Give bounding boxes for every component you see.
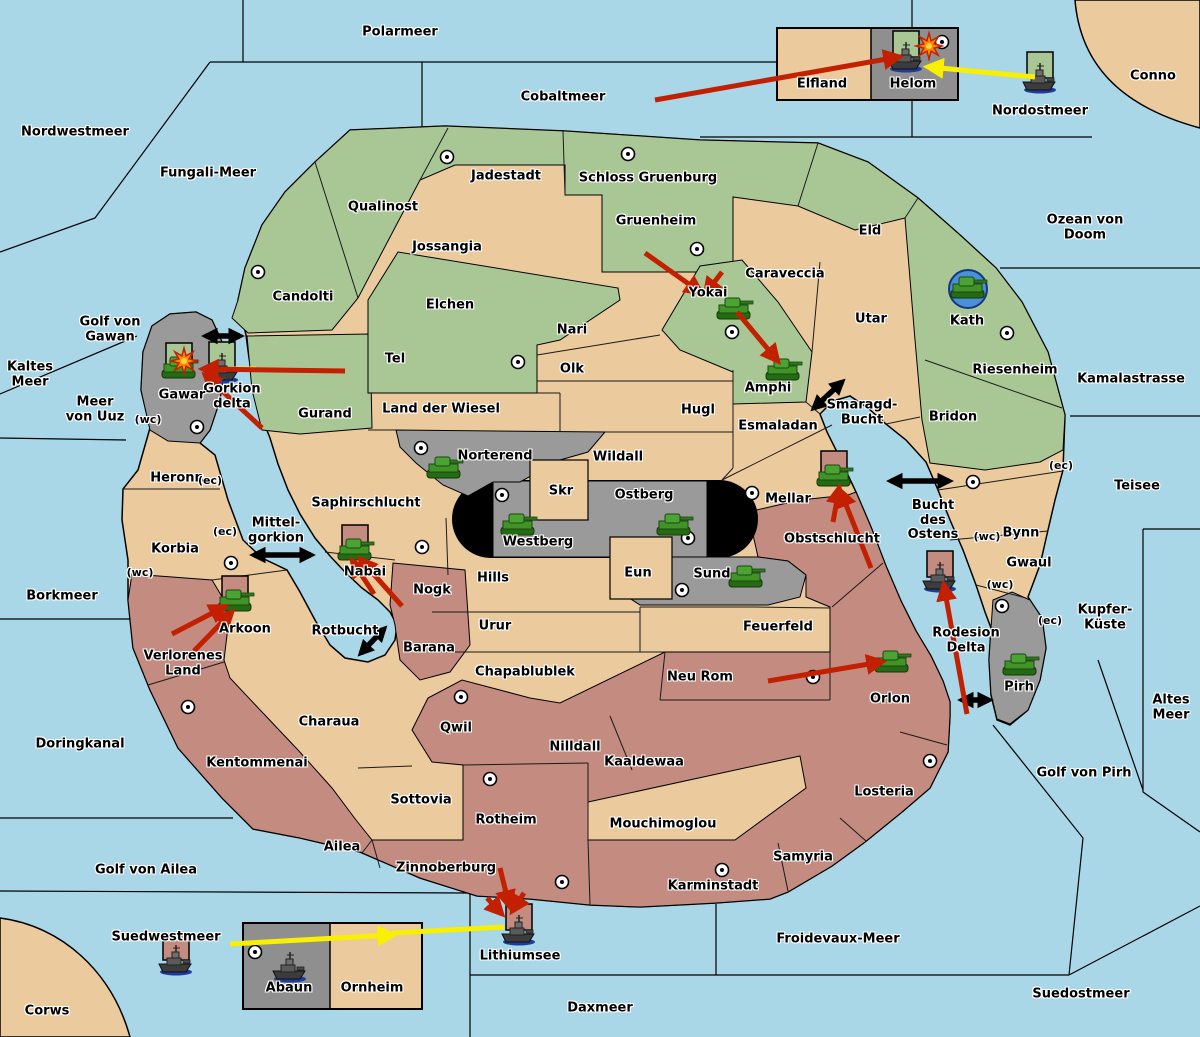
region-label-yokai[interactable]: Yokai — [688, 287, 727, 302]
region-label-bridon[interactable]: Bridon — [929, 411, 977, 426]
region-label-eun[interactable]: Eun — [624, 567, 651, 582]
region-label-nilldall[interactable]: Nilldall — [549, 741, 600, 756]
region-label-helom[interactable]: Helom — [890, 78, 937, 93]
coast-type-marker: (wc) — [127, 567, 154, 579]
map-labels: PolarmeerCobaltmeerNordwestmeerFungali-M… — [0, 0, 1200, 1037]
region-label-hills[interactable]: Hills — [477, 572, 509, 587]
coast-type-marker: (ec) — [1038, 615, 1062, 627]
region-label-olk[interactable]: Olk — [560, 363, 584, 378]
coast-type-marker: (ec) — [1049, 460, 1073, 472]
region-label-ailea[interactable]: Ailea — [324, 841, 361, 856]
region-label-utar[interactable]: Utar — [855, 313, 887, 328]
sea-label-nordwestmeer[interactable]: Nordwestmeer — [21, 126, 129, 141]
region-label-qualinost[interactable]: Qualinost — [348, 201, 418, 216]
region-label-rotheim[interactable]: Rotheim — [475, 814, 536, 829]
region-label-land-der-wiesel[interactable]: Land der Wiesel — [382, 403, 500, 418]
coast-type-marker: (ec) — [198, 475, 222, 487]
region-label-verlorenes-land[interactable]: Verlorenes Land — [143, 649, 222, 678]
sea-label-golf-von-pirh[interactable]: Golf von Pirh — [1036, 767, 1131, 782]
region-label-samyria[interactable]: Samyria — [773, 851, 833, 866]
region-label-gawar[interactable]: Gawar — [159, 389, 206, 404]
region-label-kath[interactable]: Kath — [950, 315, 984, 330]
region-label-tel[interactable]: Tel — [385, 353, 405, 368]
sea-label-gorkion-delta[interactable]: Gorkion delta — [203, 382, 260, 411]
sea-label-altes-meer[interactable]: Altes Meer — [1152, 693, 1189, 722]
sea-label-golf-von-ailea[interactable]: Golf von Ailea — [95, 864, 197, 879]
sea-label-froidevaux-meer[interactable]: Froidevaux-Meer — [776, 933, 899, 948]
sea-label-nordostmeer[interactable]: Nordostmeer — [992, 105, 1088, 120]
sea-label-meer-von-uuz[interactable]: Meer von Uuz — [66, 395, 125, 424]
region-label-gruenheim[interactable]: Gruenheim — [616, 215, 696, 230]
sea-label-daxmeer[interactable]: Daxmeer — [567, 1002, 633, 1017]
sea-label-suedwestmeer[interactable]: Suedwestmeer — [111, 931, 220, 946]
coast-type-marker: (wc) — [987, 579, 1014, 591]
sea-label-cobaltmeer[interactable]: Cobaltmeer — [521, 91, 606, 106]
sea-label-golf-von-gawan[interactable]: Golf von Gawan — [80, 315, 141, 344]
region-label-wildall[interactable]: Wildall — [593, 451, 643, 466]
region-label-ornheim[interactable]: Ornheim — [341, 982, 404, 997]
region-label-nari[interactable]: Nari — [557, 324, 588, 339]
sea-label-borkmeer[interactable]: Borkmeer — [26, 590, 98, 605]
region-label-arkoon[interactable]: Arkoon — [219, 623, 271, 638]
region-label-qwil[interactable]: Qwil — [440, 722, 472, 737]
sea-label-rodesion-delta[interactable]: Rodesion Delta — [932, 626, 999, 655]
sea-label-bucht-des-ostens[interactable]: Bucht des Ostens — [908, 499, 959, 543]
region-label-orlon[interactable]: Orlon — [870, 693, 910, 708]
sea-label-polarmeer[interactable]: Polarmeer — [362, 26, 438, 41]
region-label-conno[interactable]: Conno — [1130, 70, 1176, 85]
region-label-skr[interactable]: Skr — [549, 485, 573, 500]
sea-label-kamalastrasse[interactable]: Kamalastrasse — [1077, 373, 1185, 388]
region-label-eld[interactable]: Eld — [859, 225, 882, 240]
region-label-mellar[interactable]: Mellar — [765, 493, 811, 508]
region-label-caraveccia[interactable]: Caraveccia — [745, 268, 824, 283]
sea-label-ozean-von-doom[interactable]: Ozean von Doom — [1028, 213, 1143, 242]
region-label-korbia[interactable]: Korbia — [151, 543, 199, 558]
sea-label-teisee[interactable]: Teisee — [1114, 480, 1160, 495]
region-label-pirh[interactable]: Pirh — [1004, 681, 1034, 696]
region-label-karminstadt[interactable]: Karminstadt — [668, 880, 759, 895]
region-label-mouchimoglou[interactable]: Mouchimoglou — [610, 818, 717, 833]
sea-label-fungali-meer[interactable]: Fungali-Meer — [160, 167, 256, 182]
coast-type-marker: (ec) — [213, 526, 237, 538]
region-label-schloss-gruenburg[interactable]: Schloss Gruenburg — [579, 172, 717, 187]
region-label-sottovia[interactable]: Sottovia — [390, 794, 451, 809]
region-label-losteria[interactable]: Losteria — [854, 786, 914, 801]
region-label-ostberg[interactable]: Ostberg — [615, 489, 674, 504]
region-label-gwaul[interactable]: Gwaul — [1006, 557, 1051, 572]
region-label-corws[interactable]: Corws — [25, 1005, 70, 1020]
region-label-urur[interactable]: Urur — [479, 620, 512, 635]
region-label-nabai[interactable]: Nabai — [344, 566, 386, 581]
region-label-norterend[interactable]: Norterend — [457, 450, 532, 465]
region-label-bynn[interactable]: Bynn — [1003, 527, 1040, 542]
sea-label-rotbucht[interactable]: Rotbucht — [312, 625, 379, 640]
region-label-obstschlucht[interactable]: Obstschlucht — [784, 533, 880, 548]
region-label-gurand[interactable]: Gurand — [298, 408, 352, 423]
sea-label-kaltes-meer[interactable]: Kaltes Meer — [7, 360, 53, 389]
region-label-kaaldewaa[interactable]: Kaaldewaa — [604, 756, 684, 771]
region-label-heronn[interactable]: Heronn — [150, 472, 204, 487]
region-label-amphi[interactable]: Amphi — [745, 382, 792, 397]
region-label-feuerfeld[interactable]: Feuerfeld — [743, 621, 813, 636]
sea-label-suedostmeer[interactable]: Suedostmeer — [1032, 988, 1129, 1003]
region-label-saphirschlucht[interactable]: Saphirschlucht — [311, 497, 420, 512]
region-label-elchen[interactable]: Elchen — [426, 299, 474, 314]
region-label-riesenheim[interactable]: Riesenheim — [972, 364, 1057, 379]
region-label-charaua[interactable]: Charaua — [299, 716, 360, 731]
game-map: PolarmeerCobaltmeerNordwestmeerFungali-M… — [0, 0, 1200, 1037]
region-label-jossangia[interactable]: Jossangia — [412, 241, 482, 256]
coast-type-marker: (wc) — [135, 414, 162, 426]
sea-label-mittel-gorkion[interactable]: Mittel- gorkion — [248, 516, 304, 545]
sea-label-doringkanal[interactable]: Doringkanal — [35, 738, 124, 753]
region-label-zinnoberburg[interactable]: Zinnoberburg — [396, 862, 496, 877]
sea-label-lithiumsee[interactable]: Lithiumsee — [480, 950, 561, 965]
region-label-esmaladan[interactable]: Esmaladan — [738, 420, 818, 435]
coast-type-marker: (wc) — [974, 531, 1001, 543]
region-label-abaun[interactable]: Abaun — [266, 982, 313, 997]
region-label-chapablublek[interactable]: Chapablublek — [475, 666, 575, 681]
sea-label-smaragd-bucht[interactable]: Smaragd- Bucht — [827, 398, 898, 427]
region-label-neu-rom[interactable]: Neu Rom — [667, 671, 733, 686]
region-label-westberg[interactable]: Westberg — [503, 536, 573, 551]
region-label-nogk[interactable]: Nogk — [413, 584, 451, 599]
sea-label-kupfer-küste[interactable]: Kupfer- Küste — [1078, 603, 1133, 632]
region-label-barana[interactable]: Barana — [403, 642, 455, 657]
region-label-hugl[interactable]: Hugl — [681, 404, 715, 419]
region-label-kentommenai[interactable]: Kentommenai — [206, 757, 307, 772]
region-label-sund[interactable]: Sund — [693, 568, 730, 583]
region-label-candolti[interactable]: Candolti — [273, 291, 334, 306]
region-label-jadestadt[interactable]: Jadestadt — [471, 170, 541, 185]
region-label-elfland[interactable]: Elfland — [797, 78, 847, 93]
